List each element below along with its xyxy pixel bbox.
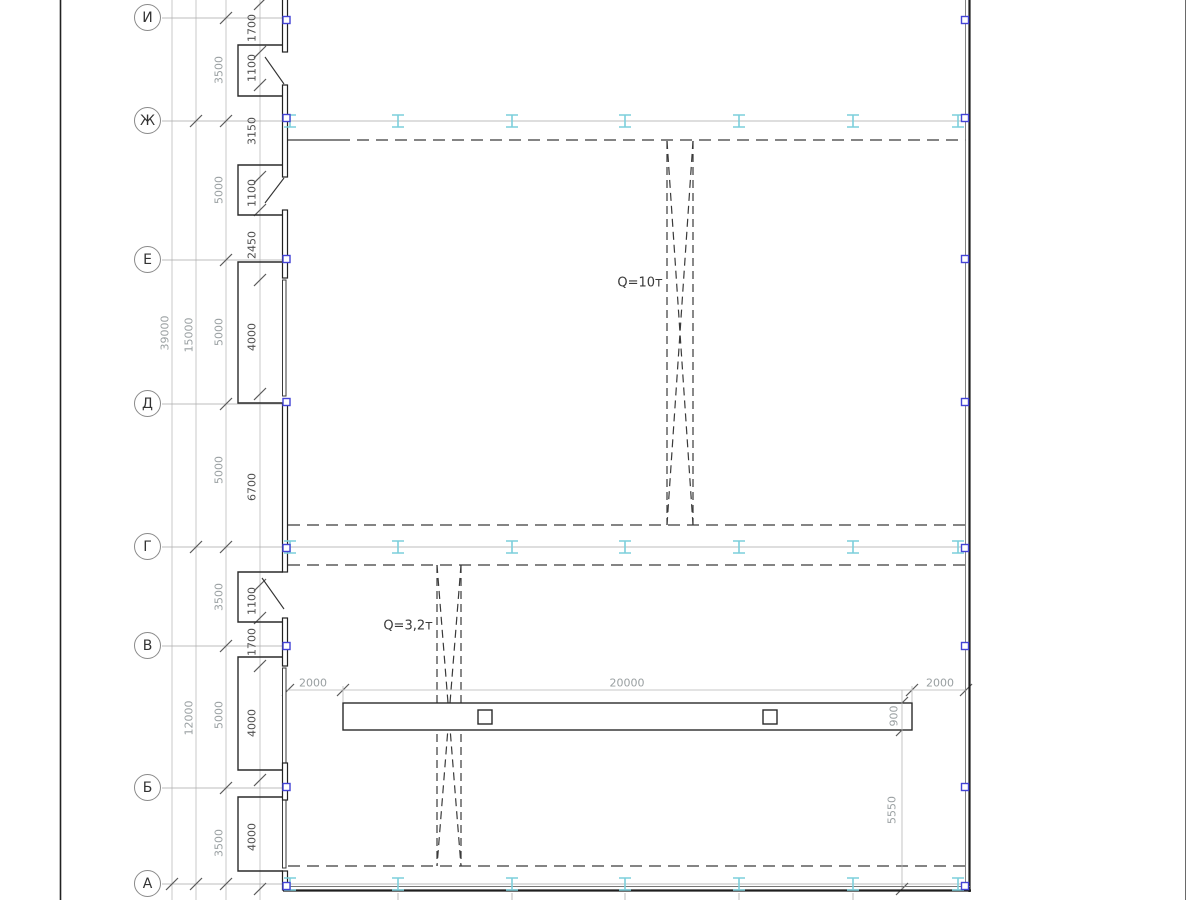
axis-label: В	[143, 638, 153, 654]
crane-capacity-label-3-2t: Q=3,2т	[383, 619, 432, 634]
dim-label-beam-to-wall: 5550	[887, 796, 898, 824]
dim-label-section-upper: 15000	[184, 318, 195, 353]
dim-label-axis-spacing: 5000	[214, 318, 225, 346]
dim-label-axis-spacing: 3500	[214, 829, 225, 857]
rail-i-beam-icons	[284, 115, 964, 890]
bridge-crane-symbol	[667, 141, 693, 525]
dim-label-wall-segment: 4000	[247, 709, 258, 737]
dim-label-wall-segment: 2450	[247, 231, 258, 259]
floor-plan-drawing	[0, 0, 1200, 900]
dim-label-overall: 39000	[160, 316, 171, 351]
dim-label-axis-spacing: 5000	[214, 456, 225, 484]
right-wall	[966, 0, 970, 892]
crane-capacity-label-10t: Q=10т	[617, 276, 662, 291]
axis-bubble-g: Г	[134, 533, 161, 560]
dim-label-beam-offset-left: 2000	[299, 678, 327, 689]
dim-label-wall-segment: 4000	[247, 323, 258, 351]
axis-label: Г	[143, 539, 152, 555]
dim-label-wall-segment: 4000	[247, 823, 258, 851]
sheet-border	[61, 0, 1186, 900]
axis-bubble-a: А	[134, 870, 161, 897]
axis-label: И	[142, 10, 152, 26]
axis-label: Д	[142, 396, 153, 412]
monorail-beam	[343, 703, 912, 730]
axis-label: Б	[143, 780, 153, 796]
axis-bubble-e: Е	[134, 246, 161, 273]
dim-label-beam-height: 900	[889, 706, 900, 727]
axis-bubble-i: И	[134, 4, 161, 31]
column-marker-icons	[283, 17, 969, 890]
dim-label-wall-segment: 6700	[247, 473, 258, 501]
gate-pocket-boxes	[238, 45, 283, 871]
door-swing-lines	[262, 57, 284, 609]
dim-label-wall-segment: 1100	[247, 54, 258, 82]
axis-bubble-d: Д	[134, 390, 161, 417]
dim-label-wall-segment: 3150	[247, 117, 258, 145]
drawing-sheet: И Ж Е Д Г В Б А 39000 15000 12000 3500 5…	[0, 0, 1200, 900]
column-grid-stubs	[398, 893, 853, 900]
dim-label-wall-segment: 1700	[247, 14, 258, 42]
dim-label-beam-offset-right: 2000	[926, 678, 954, 689]
dim-label-axis-spacing: 3500	[214, 583, 225, 611]
axis-label: Ж	[140, 113, 155, 129]
dim-label-axis-spacing: 5000	[214, 701, 225, 729]
crane-runway-lines	[288, 140, 966, 866]
dim-label-axis-spacing: 5000	[214, 176, 225, 204]
axis-bubble-b: Б	[134, 774, 161, 801]
dim-label-section-lower: 12000	[184, 701, 195, 736]
dim-label-beam-length: 20000	[610, 678, 645, 689]
axis-label: Е	[143, 252, 152, 268]
dim-label-wall-segment: 1100	[247, 587, 258, 615]
dim-label-axis-spacing: 3500	[214, 56, 225, 84]
dim-label-wall-segment: 1100	[247, 179, 258, 207]
axis-label: А	[143, 876, 153, 892]
axis-bubble-v: В	[134, 632, 161, 659]
axis-bubble-zh: Ж	[134, 107, 161, 134]
dim-label-wall-segment: 1700	[247, 628, 258, 656]
